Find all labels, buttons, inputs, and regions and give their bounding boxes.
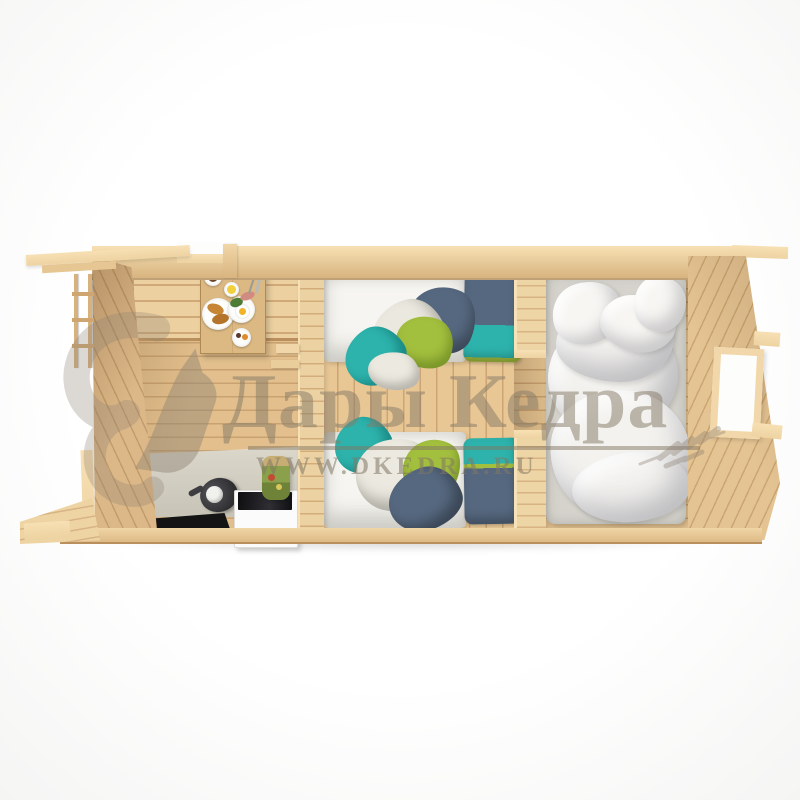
- render-canvas: Дары Кедра WWW.DKEDRA.RU: [0, 0, 800, 800]
- partition-bedrooms-lower: [514, 436, 546, 538]
- ladder-rung: [72, 318, 94, 322]
- jar-contents-icon: [276, 484, 282, 490]
- ladder-rung: [72, 344, 94, 348]
- bottom-floor-rim: [60, 528, 762, 544]
- doorway-jamb: [514, 350, 546, 358]
- berry-icon: [236, 333, 241, 338]
- egg-yolk-icon: [239, 308, 246, 315]
- door-frame-tab: [271, 360, 299, 368]
- top-wall-post: [223, 244, 237, 278]
- window-sill-tab: [754, 331, 781, 347]
- preserve-jar: [262, 456, 290, 500]
- orange-slice-icon: [242, 334, 248, 340]
- partition-kitchen-bedroom: [298, 252, 324, 540]
- jar-contents-icon: [268, 474, 275, 481]
- kettle-lid-icon: [206, 486, 223, 503]
- door-frame-tab: [276, 344, 299, 353]
- ladder-rung: [72, 292, 94, 296]
- lemon-icon: [227, 285, 236, 294]
- single-bed-lower-pillow: [463, 438, 520, 525]
- porch-step: [23, 520, 70, 539]
- window-sill-tab: [751, 422, 782, 439]
- doorway-jamb: [514, 430, 546, 438]
